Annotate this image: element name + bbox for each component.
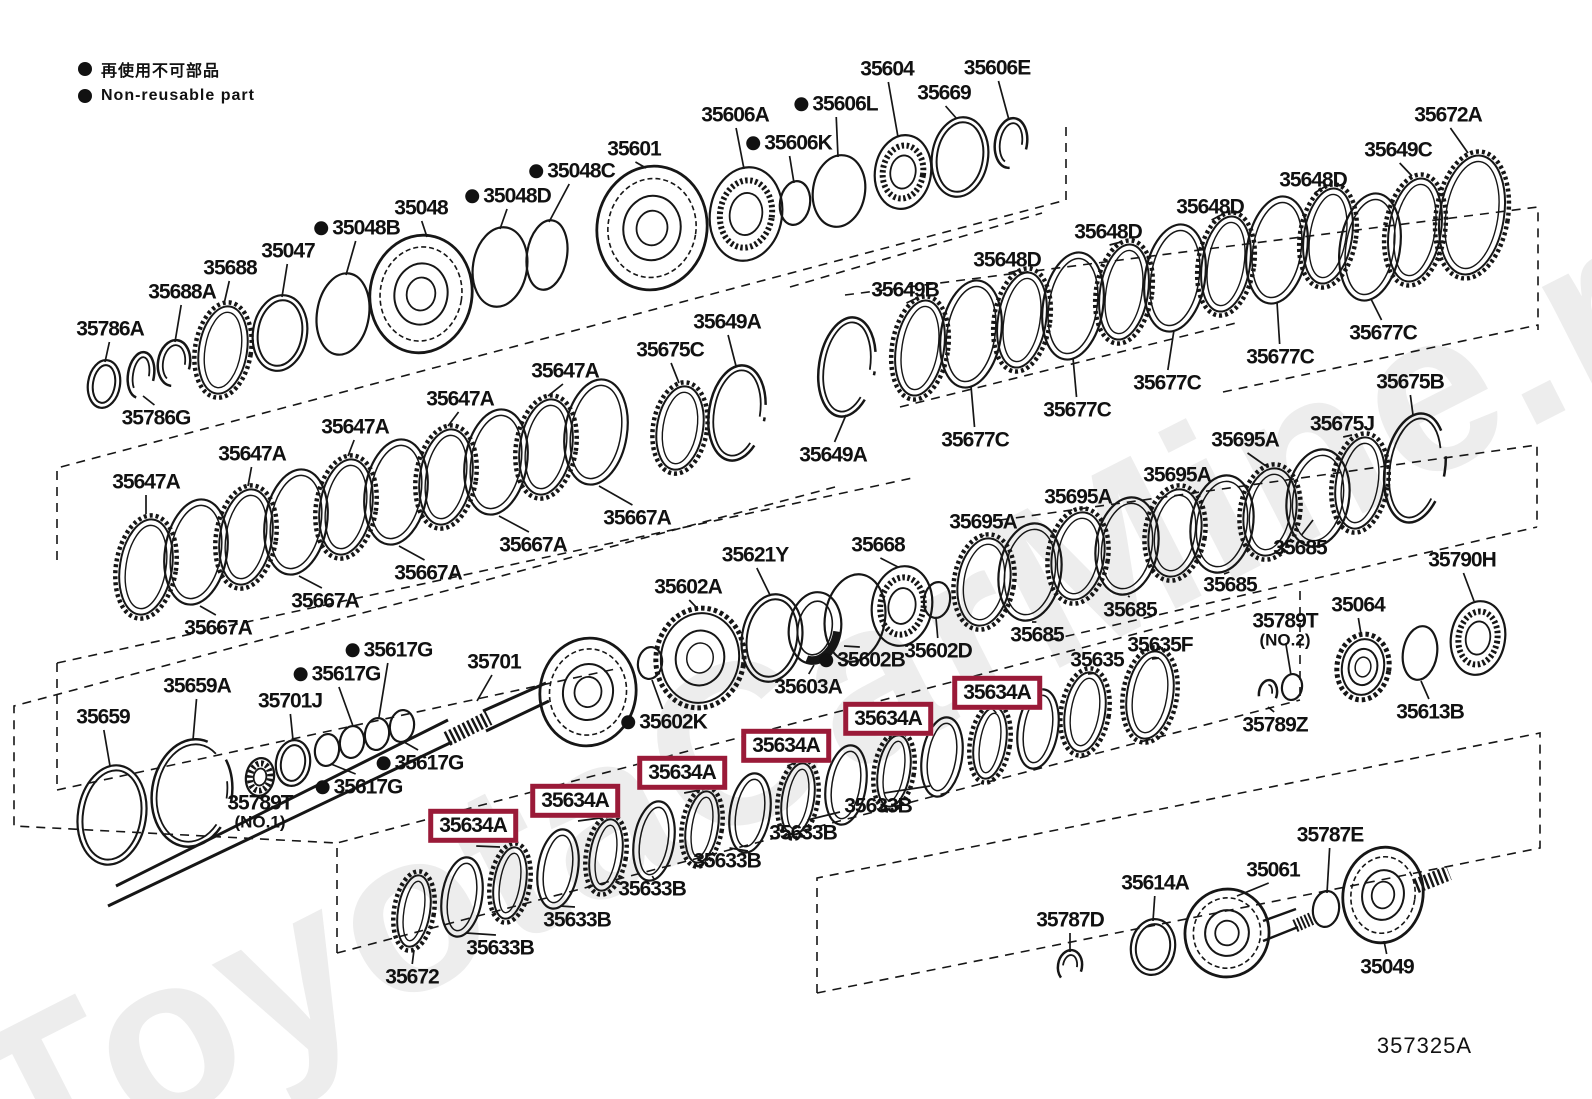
part-label: 35621Y bbox=[722, 544, 788, 565]
highlighted-part-label: 35634A bbox=[428, 809, 518, 843]
parts-diagram-page: ToyotaCarMine.ru 3560435606E3566935606L3… bbox=[0, 0, 1592, 1099]
part-label: 35648D bbox=[1279, 169, 1347, 190]
part-label: 35667A bbox=[184, 617, 252, 638]
part-label: 35786A bbox=[76, 318, 144, 339]
part-label: 35633B bbox=[618, 878, 686, 899]
part-label: 35617G bbox=[346, 639, 433, 660]
non-reusable-dot-icon bbox=[819, 653, 833, 667]
part-label: 35649B bbox=[871, 279, 939, 300]
non-reusable-dot-icon bbox=[346, 643, 360, 657]
part-label: 35695A bbox=[1211, 429, 1279, 450]
part-label: 35695A bbox=[949, 511, 1017, 532]
part-label: 35606L bbox=[794, 93, 877, 114]
part-label: 35672 bbox=[385, 966, 438, 987]
part-label: 35688 bbox=[203, 257, 256, 278]
legend-text-en: Non-reusable part bbox=[101, 87, 255, 105]
part-label: 35602K bbox=[621, 711, 707, 732]
highlighted-part-label: 35634A bbox=[530, 784, 620, 818]
part-label: 35677C bbox=[1246, 346, 1314, 367]
non-reusable-dot-icon bbox=[746, 136, 760, 150]
part-label: 35602B bbox=[819, 649, 905, 670]
part-label: 35790H bbox=[1428, 549, 1496, 570]
part-label: 35675B bbox=[1376, 371, 1444, 392]
part-label: 35701 bbox=[467, 651, 520, 672]
part-label: 35675C bbox=[636, 339, 704, 360]
part-label: 35602A bbox=[654, 576, 722, 597]
part-label: 35617G bbox=[294, 663, 381, 684]
part-label: 35685 bbox=[1203, 574, 1256, 595]
part-label: 35659 bbox=[76, 706, 129, 727]
non-reusable-dot-icon bbox=[621, 715, 635, 729]
part-label: 35648D bbox=[1074, 221, 1142, 242]
part-label: 35667A bbox=[291, 590, 359, 611]
part-label: 35047 bbox=[261, 240, 314, 261]
non-reusable-dot-icon bbox=[465, 189, 479, 203]
part-label: 35647A bbox=[531, 360, 599, 381]
part-label: 35789T(NO.1) bbox=[227, 793, 292, 832]
part-label: 35048B bbox=[314, 217, 400, 238]
part-label: 35635 bbox=[1070, 649, 1123, 670]
highlighted-part-label: 35634A bbox=[952, 676, 1042, 710]
part-label: 35647A bbox=[321, 416, 389, 437]
part-label: 35685 bbox=[1103, 599, 1156, 620]
part-label: 35606E bbox=[964, 57, 1030, 78]
part-label: 35688A bbox=[148, 281, 216, 302]
non-reusable-dot-icon bbox=[377, 756, 391, 770]
part-label: 35672A bbox=[1414, 104, 1482, 125]
part-label: 35677C bbox=[1349, 322, 1417, 343]
part-label: 35649C bbox=[1364, 139, 1432, 160]
part-label: 35603A bbox=[774, 676, 842, 697]
part-label: 35648D bbox=[973, 249, 1041, 270]
part-label: 35048D bbox=[465, 185, 551, 206]
part-label: 35677C bbox=[941, 429, 1009, 450]
part-label: 35695A bbox=[1044, 486, 1112, 507]
part-label: 35677C bbox=[1133, 372, 1201, 393]
part-label: 35786G bbox=[122, 407, 191, 428]
non-reusable-dot-icon bbox=[78, 89, 92, 103]
non-reusable-dot-icon bbox=[794, 97, 808, 111]
part-label-suffix: (NO.2) bbox=[1252, 632, 1317, 649]
part-label: 35606A bbox=[701, 104, 769, 125]
part-label: 35685 bbox=[1010, 624, 1063, 645]
part-label: 35675J bbox=[1310, 413, 1374, 434]
legend-row-jp: 再使用不可部品 bbox=[78, 57, 255, 81]
part-label: 35633B bbox=[466, 937, 534, 958]
part-label: 35667A bbox=[394, 562, 462, 583]
highlighted-part-label: 35634A bbox=[741, 729, 831, 763]
non-reusable-dot-icon bbox=[316, 780, 330, 794]
part-label: 35613B bbox=[1396, 701, 1464, 722]
part-label: 35633B bbox=[693, 850, 761, 871]
diagram-code: 357325A bbox=[1377, 1033, 1472, 1059]
part-label: 35601 bbox=[607, 138, 660, 159]
part-label: 35648D bbox=[1176, 196, 1244, 217]
non-reusable-dot-icon bbox=[529, 164, 543, 178]
part-label: 35685 bbox=[1273, 537, 1326, 558]
part-label: 35677C bbox=[1043, 399, 1111, 420]
part-label: 35606K bbox=[746, 132, 832, 153]
part-label: 35617G bbox=[316, 776, 403, 797]
part-label: 35064 bbox=[1331, 594, 1384, 615]
part-label: 35787D bbox=[1036, 909, 1104, 930]
non-reusable-dot-icon bbox=[78, 62, 92, 76]
part-label: 35633B bbox=[769, 822, 837, 843]
legend-text-jp: 再使用不可部品 bbox=[101, 57, 220, 81]
part-label: 35701J bbox=[258, 690, 322, 711]
part-label: 35647A bbox=[218, 443, 286, 464]
part-label: 35667A bbox=[603, 507, 671, 528]
part-label: 35787E bbox=[1297, 824, 1363, 845]
part-label: 35647A bbox=[112, 471, 180, 492]
part-label: 35048 bbox=[394, 197, 447, 218]
part-label: 35649A bbox=[799, 444, 867, 465]
non-reusable-dot-icon bbox=[314, 221, 328, 235]
part-label: 35669 bbox=[917, 82, 970, 103]
part-labels-layer: 3560435606E3566935606L35606A35606K356013… bbox=[0, 0, 1592, 1099]
part-label: 35614A bbox=[1121, 872, 1189, 893]
part-label: 35633B bbox=[543, 909, 611, 930]
part-label: 35602D bbox=[904, 640, 972, 661]
part-label: 35667A bbox=[499, 534, 567, 555]
part-label: 35635F bbox=[1127, 634, 1192, 655]
non-reusable-dot-icon bbox=[294, 667, 308, 681]
part-label: 35789Z bbox=[1242, 714, 1307, 735]
legend-row-en: Non-reusable part bbox=[78, 87, 255, 105]
highlighted-part-label: 35634A bbox=[843, 702, 933, 736]
part-label: 35789T(NO.2) bbox=[1252, 611, 1317, 650]
part-label: 35604 bbox=[860, 58, 913, 79]
part-label: 35633B bbox=[844, 795, 912, 816]
part-label: 35049 bbox=[1360, 956, 1413, 977]
part-label: 35061 bbox=[1246, 859, 1299, 880]
part-label: 35659A bbox=[163, 675, 231, 696]
legend: 再使用不可部品 Non-reusable part bbox=[78, 57, 255, 111]
part-label: 35048C bbox=[529, 160, 615, 181]
part-label: 35695A bbox=[1143, 464, 1211, 485]
part-label: 35668 bbox=[851, 534, 904, 555]
part-label: 35647A bbox=[426, 388, 494, 409]
highlighted-part-label: 35634A bbox=[637, 756, 727, 790]
part-label: 35649A bbox=[693, 311, 761, 332]
part-label-suffix: (NO.1) bbox=[227, 814, 292, 831]
part-label: 35617G bbox=[377, 752, 464, 773]
